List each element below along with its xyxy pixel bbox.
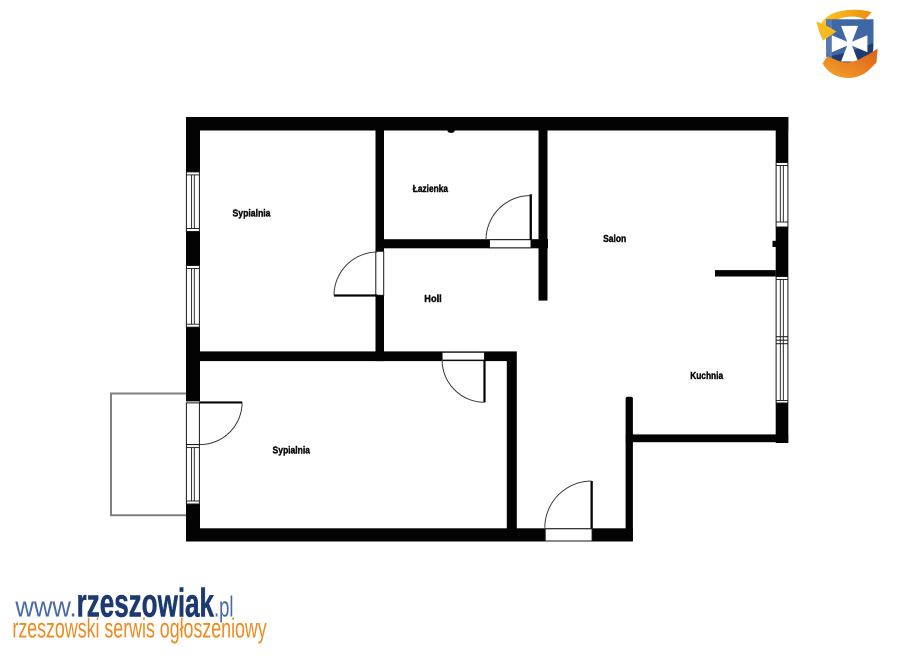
- svg-text:Kuchnia: Kuchnia: [690, 371, 723, 382]
- svg-text:rzeszowski serwis ogłoszeniowy: rzeszowski serwis ogłoszeniowy: [12, 613, 266, 644]
- svg-text:Sypialnia: Sypialnia: [273, 446, 311, 457]
- svg-text:Sypialnia: Sypialnia: [233, 208, 271, 219]
- svg-text:Łazienka: Łazienka: [413, 184, 448, 195]
- svg-text:Holl: Holl: [424, 294, 442, 305]
- svg-text:Salon: Salon: [603, 234, 626, 245]
